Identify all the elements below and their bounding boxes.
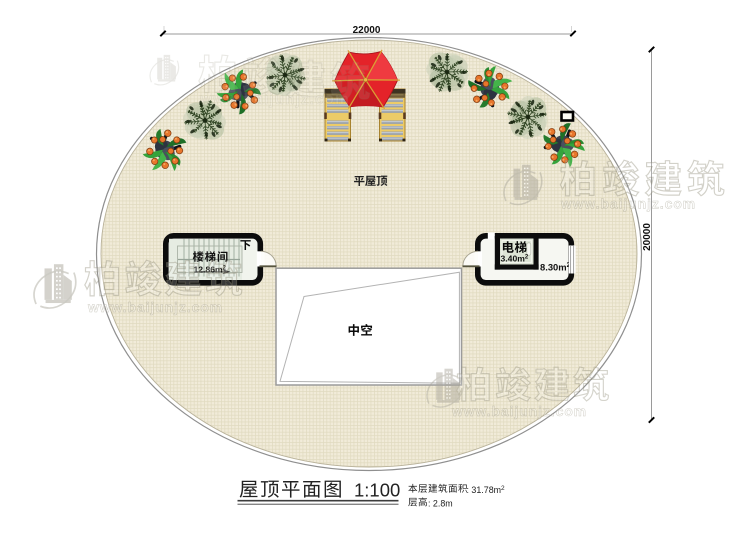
svg-text:8.30m2: 8.30m2 <box>540 261 571 272</box>
svg-text:20000: 20000 <box>642 223 653 251</box>
svg-text:www.baijunjz.com: www.baijunjz.com <box>560 197 696 212</box>
svg-text:: 31.78m2: : 31.78m2 <box>467 485 506 495</box>
svg-text:www.baijunjz.com: www.baijunjz.com <box>451 404 587 419</box>
svg-text:3.40m2: 3.40m2 <box>501 253 529 263</box>
svg-text:: 2.8m: : 2.8m <box>428 498 453 508</box>
svg-text:www.baijunjz.com: www.baijunjz.com <box>87 300 223 315</box>
svg-text:22000: 22000 <box>353 25 381 36</box>
svg-text:www.baijunjz.com: www.baijunjz.com <box>199 91 350 108</box>
svg-text:1:100: 1:100 <box>354 480 400 501</box>
